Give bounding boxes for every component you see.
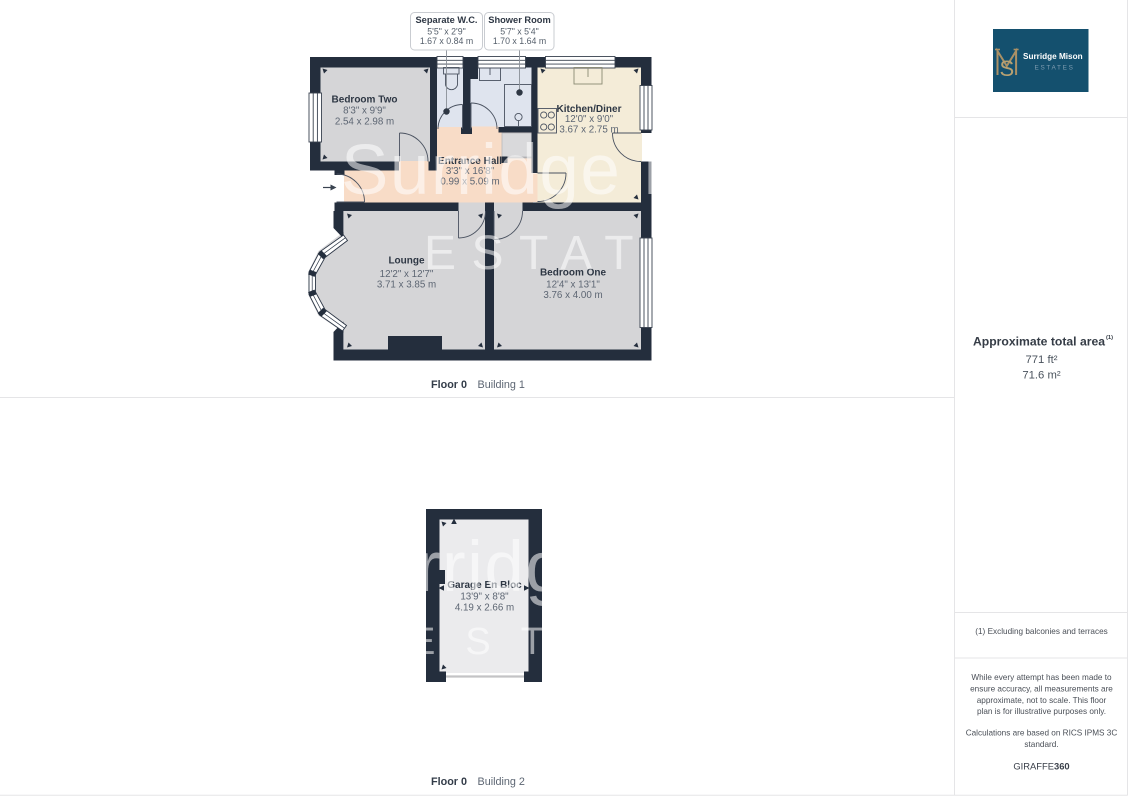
svg-text:771 ft²: 771 ft²	[1025, 354, 1057, 366]
svg-text:ESTATES: ESTATES	[424, 227, 744, 280]
svg-text:12'0" x 9'0": 12'0" x 9'0"	[565, 114, 614, 125]
svg-text:1.67 x 0.84 m: 1.67 x 0.84 m	[420, 36, 473, 46]
svg-text:1.70 x 1.64 m: 1.70 x 1.64 m	[493, 36, 546, 46]
svg-text:Surridge Mison: Surridge Mison	[327, 528, 825, 607]
svg-text:ensure accuracy, all measureme: ensure accuracy, all measurements are	[970, 684, 1113, 693]
svg-text:Lounge: Lounge	[388, 256, 425, 267]
svg-text:GIRAFFE360: GIRAFFE360	[1013, 760, 1069, 771]
svg-text:approximate, not to scale. Thi: approximate, not to scale. This floor	[977, 696, 1107, 705]
svg-text:Floor 0: Floor 0	[431, 776, 467, 788]
svg-text:Building 2: Building 2	[478, 776, 525, 788]
svg-text:3.76 x 4.00 m: 3.76 x 4.00 m	[543, 290, 602, 301]
svg-text:(1) Excluding balconies and te: (1) Excluding balconies and terraces	[975, 627, 1107, 636]
svg-text:Bedroom Two: Bedroom Two	[332, 95, 398, 106]
svg-text:Separate W.C.: Separate W.C.	[415, 15, 477, 25]
svg-text:Floor 0: Floor 0	[431, 379, 467, 391]
svg-text:8'3" x 9'9": 8'3" x 9'9"	[343, 106, 386, 117]
svg-text:12'4" x 13'1": 12'4" x 13'1"	[546, 280, 600, 291]
svg-text:Building 1: Building 1	[478, 379, 525, 391]
svg-text:3.71 x 3.85 m: 3.71 x 3.85 m	[377, 280, 436, 291]
svg-text:Approximate total area: Approximate total area	[973, 335, 1105, 349]
svg-text:S: S	[999, 56, 1014, 81]
svg-text:While every attempt has been m: While every attempt has been made to	[971, 673, 1112, 682]
svg-text:Shower Room: Shower Room	[488, 15, 551, 25]
svg-text:5'5" x 2'9": 5'5" x 2'9"	[427, 26, 465, 36]
svg-text:Surridge Mison: Surridge Mison	[1023, 52, 1083, 61]
svg-text:standard.: standard.	[1024, 740, 1058, 749]
svg-text:5'7" x 5'4": 5'7" x 5'4"	[500, 26, 538, 36]
svg-text:ESTATES: ESTATES	[410, 621, 788, 663]
svg-text:(1): (1)	[1106, 335, 1113, 341]
svg-text:ESTATES: ESTATES	[1035, 65, 1075, 72]
svg-text:plan is for illustrative purpo: plan is for illustrative purposes only.	[977, 707, 1106, 716]
svg-text:Calculations are based on RICS: Calculations are based on RICS IPMS 3C	[966, 729, 1118, 738]
svg-text:71.6 m²: 71.6 m²	[1022, 370, 1061, 382]
svg-text:Surridge Mison: Surridge Mison	[341, 131, 839, 210]
svg-text:2.54 x 2.98 m: 2.54 x 2.98 m	[335, 117, 394, 128]
